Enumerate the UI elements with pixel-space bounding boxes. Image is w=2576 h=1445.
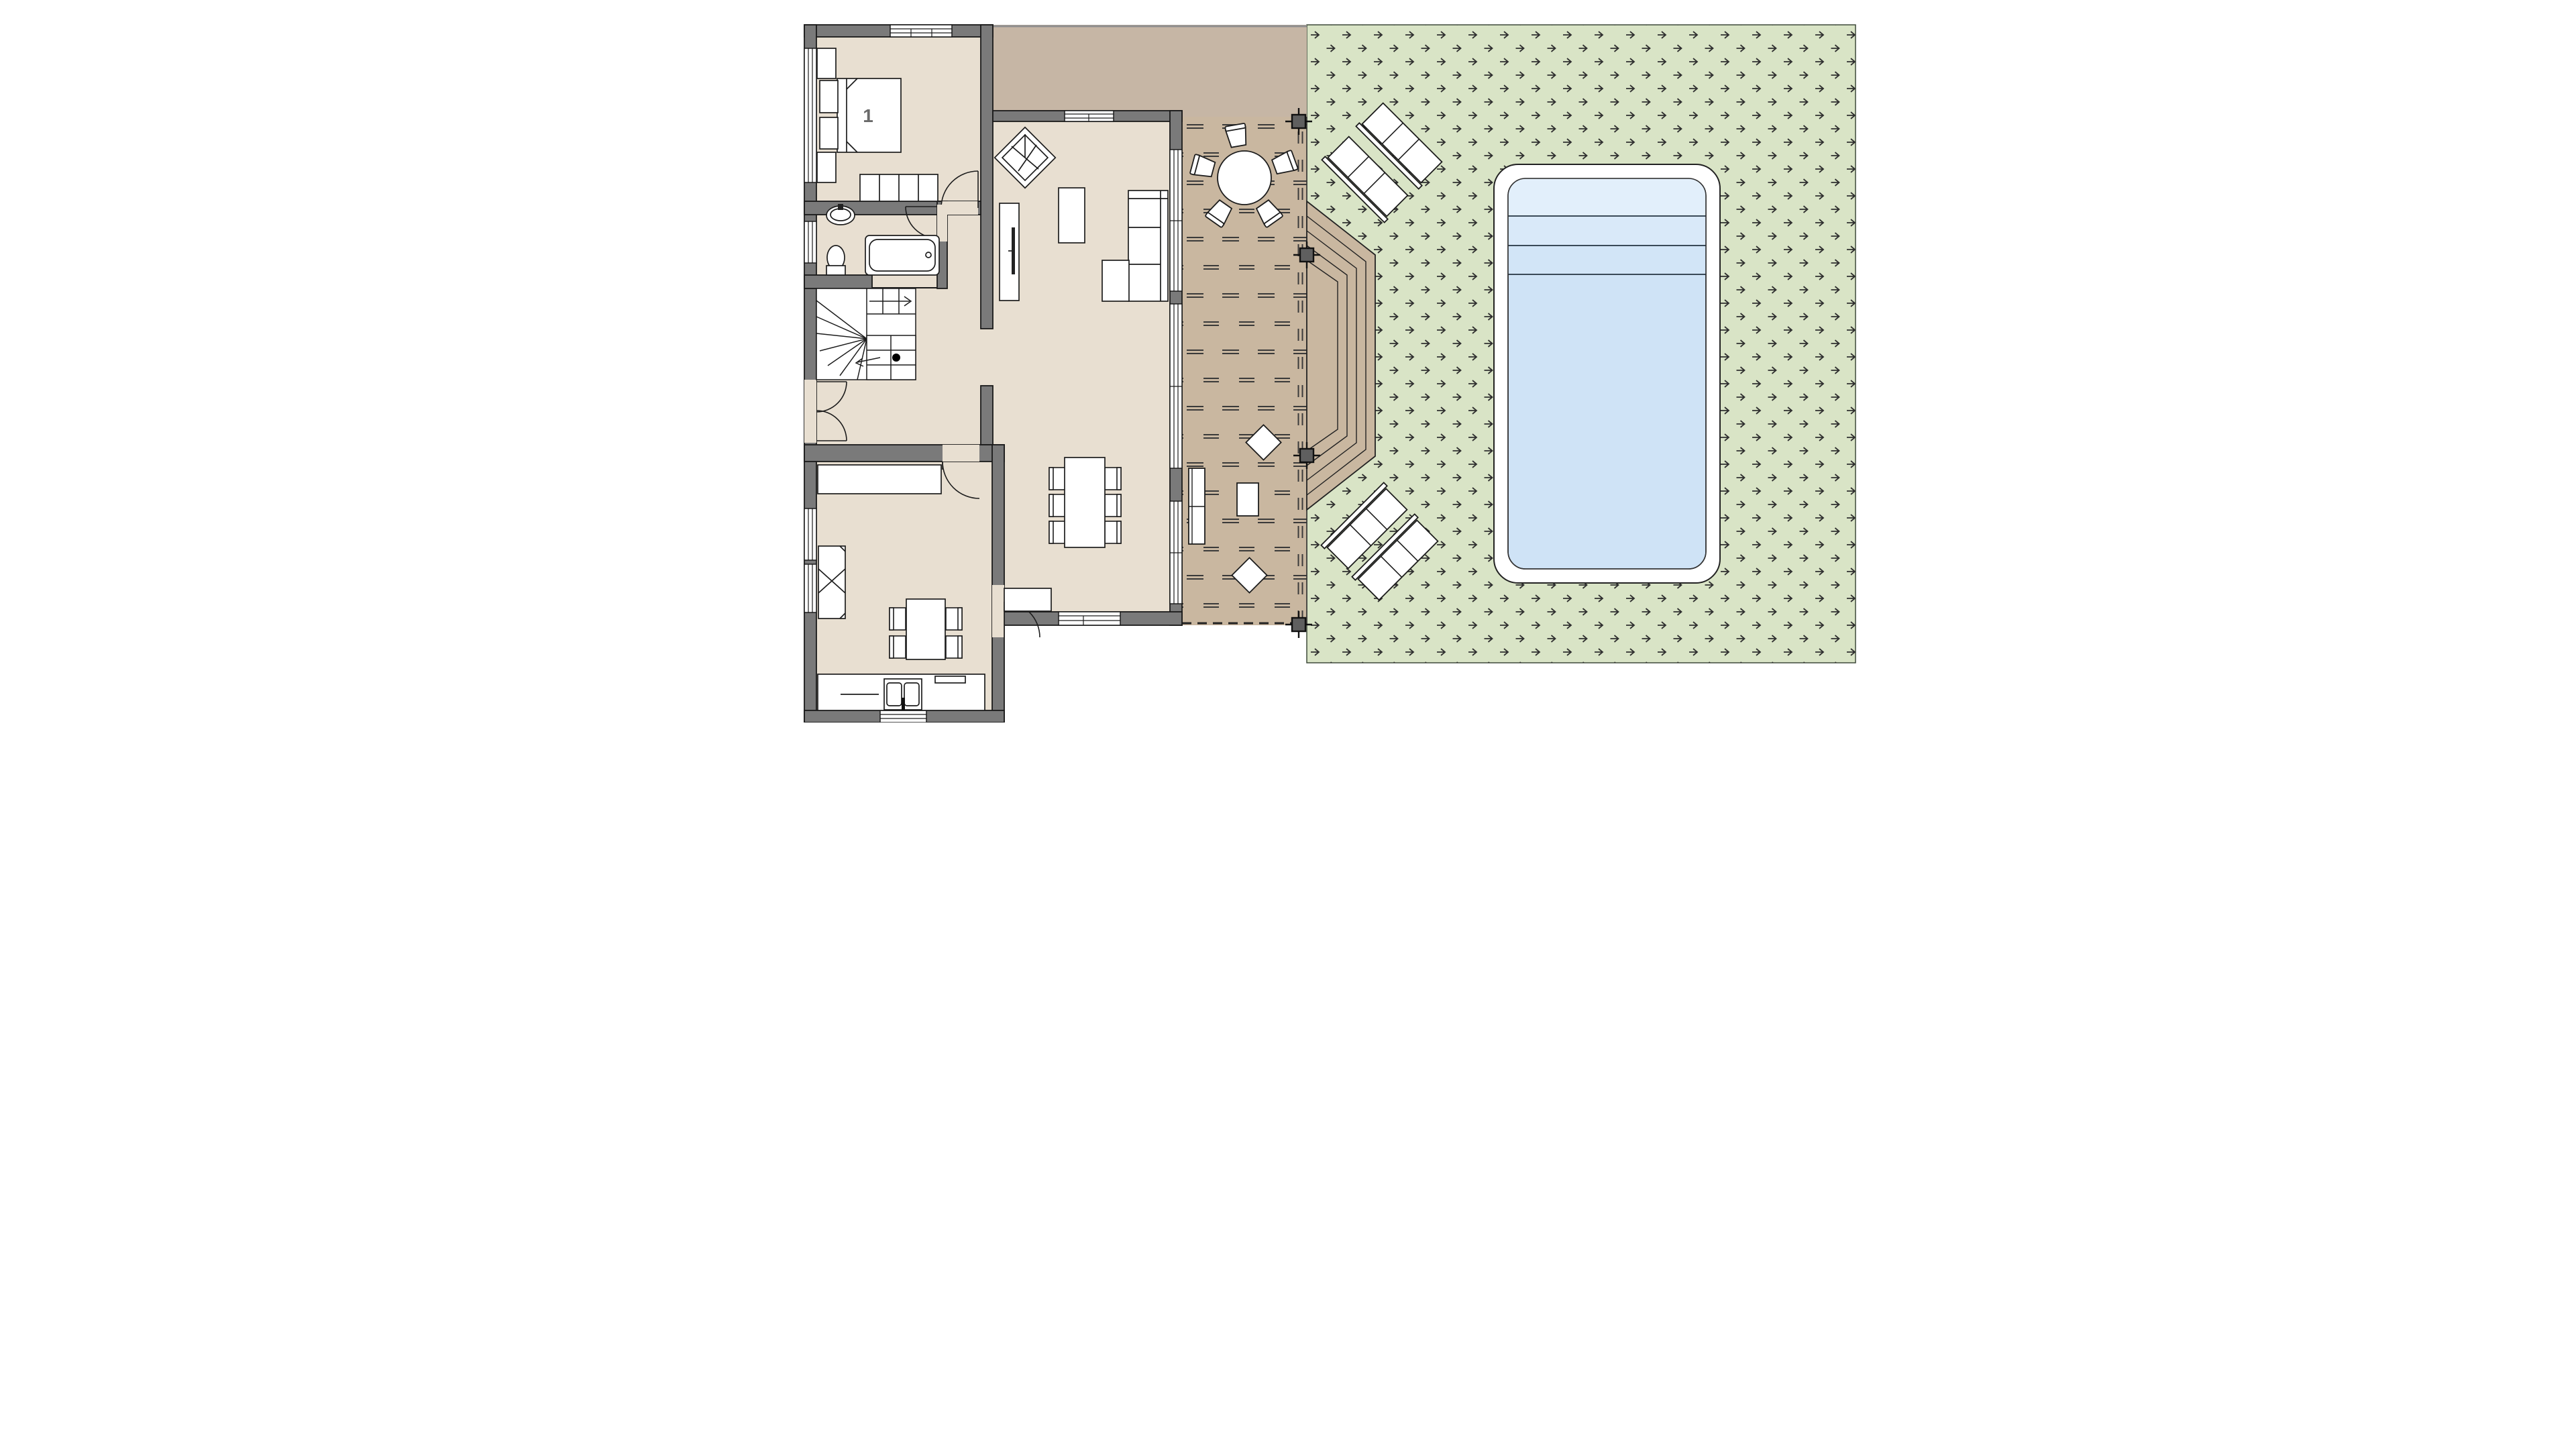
kitchen-counter <box>1004 588 1051 611</box>
room-number-label: 1 <box>863 105 873 126</box>
window <box>804 48 816 182</box>
window <box>804 564 816 612</box>
drainer <box>935 676 965 683</box>
window <box>890 25 952 37</box>
wall <box>804 275 872 288</box>
window <box>1059 612 1120 625</box>
deck-steps-bay <box>1307 201 1375 510</box>
dining-chair <box>1049 494 1065 517</box>
window <box>804 221 816 263</box>
pillow <box>820 117 838 149</box>
chair <box>946 636 962 658</box>
bathtub <box>865 235 939 275</box>
counter <box>818 465 941 494</box>
glass-door <box>1170 501 1182 604</box>
nightstand <box>817 48 836 78</box>
dining-table <box>1065 458 1105 547</box>
table <box>906 599 945 659</box>
driveway-patio <box>993 25 1307 117</box>
swimming-pool <box>1494 164 1720 583</box>
tv-sideboard <box>1000 203 1019 301</box>
floor-plan-svg: 1 <box>644 0 1932 722</box>
dining-set <box>1049 458 1121 547</box>
dining-chair <box>1105 521 1121 543</box>
floor-plan-page: 1 <box>644 0 1932 722</box>
dining-chair <box>1049 468 1065 490</box>
chair <box>946 608 962 630</box>
dining-chair <box>1049 521 1065 543</box>
kitchen-sink <box>884 679 922 710</box>
glass-door <box>1170 304 1182 468</box>
tv-icon <box>1012 227 1015 274</box>
wall <box>992 445 1004 722</box>
stair-post-dot <box>892 354 900 362</box>
window <box>880 710 926 722</box>
coffee-table <box>1059 188 1085 243</box>
chair <box>890 636 906 658</box>
dresser <box>860 174 938 201</box>
wardrobe <box>818 546 845 619</box>
round-table <box>1218 151 1271 205</box>
chair <box>890 608 906 630</box>
dining-chair <box>1105 494 1121 517</box>
kitchen-counter-bottom <box>818 674 985 710</box>
ottoman <box>1102 260 1129 301</box>
glass-door <box>1170 150 1182 291</box>
wall <box>981 386 993 445</box>
window <box>1065 111 1114 121</box>
toilet <box>826 246 845 275</box>
wall <box>981 25 993 329</box>
dining-chair <box>1105 468 1121 490</box>
bench <box>1189 468 1205 544</box>
window <box>804 509 816 560</box>
tap-icon <box>902 698 905 710</box>
staircase <box>816 288 916 380</box>
side-table <box>1237 483 1258 516</box>
pillow <box>820 81 838 113</box>
pool-steps <box>1508 178 1706 274</box>
nightstand <box>817 152 836 182</box>
table-set <box>890 599 962 659</box>
